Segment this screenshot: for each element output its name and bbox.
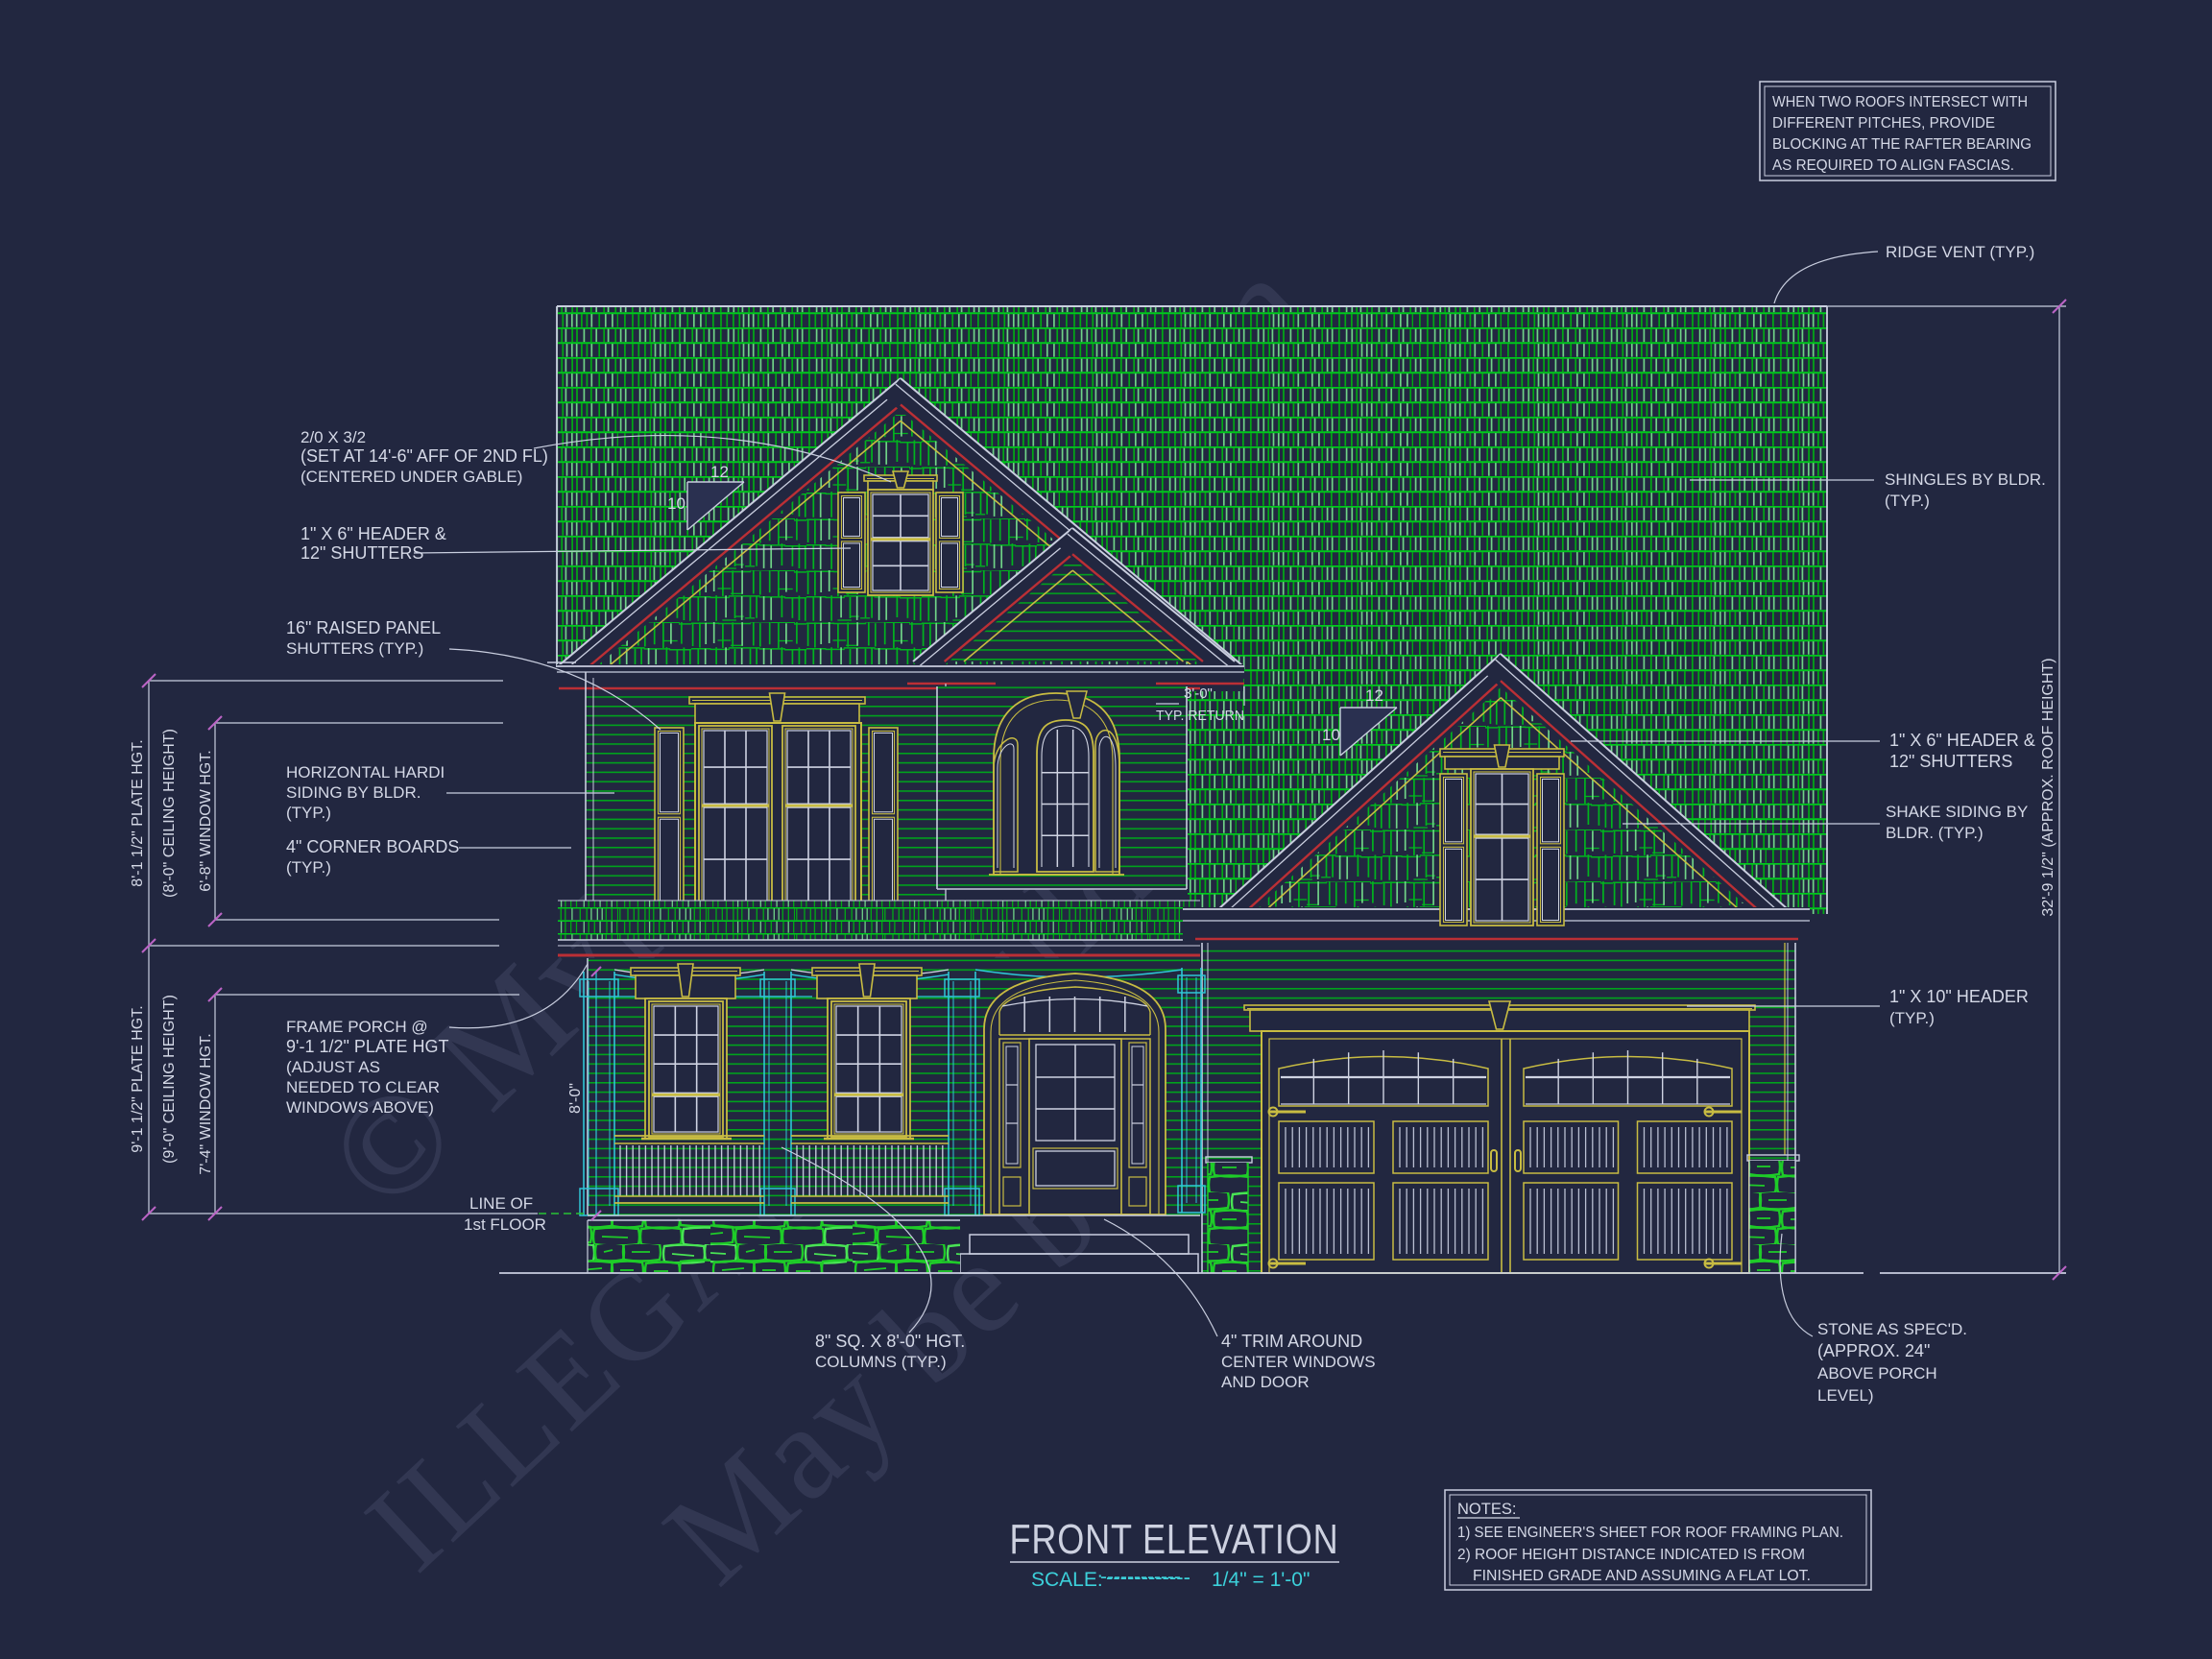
svg-text:(ADJUST AS: (ADJUST AS: [286, 1058, 380, 1076]
svg-text:STONE AS SPEC'D.: STONE AS SPEC'D.: [1817, 1320, 1967, 1338]
svg-text:8" SQ. X 8'-0" HGT.: 8" SQ. X 8'-0" HGT.: [815, 1332, 965, 1351]
svg-text:HORIZONTAL HARDI: HORIZONTAL HARDI: [286, 763, 445, 781]
svg-text:DIFFERENT PITCHES, PROVIDE: DIFFERENT PITCHES, PROVIDE: [1772, 115, 1995, 132]
svg-text:12" SHUTTERS: 12" SHUTTERS: [301, 543, 423, 563]
svg-text:1" X 6" HEADER &: 1" X 6" HEADER &: [1889, 731, 2035, 750]
svg-text:16" RAISED PANEL: 16" RAISED PANEL: [286, 618, 441, 637]
svg-text:(8'-0" CEILING HEIGHT): (8'-0" CEILING HEIGHT): [161, 729, 178, 898]
svg-text:TYP. RETURN: TYP. RETURN: [1156, 708, 1244, 724]
svg-text:------------: ------------: [1106, 1565, 1190, 1589]
svg-text:2) ROOF HEIGHT DISTANCE INDICA: 2) ROOF HEIGHT DISTANCE INDICATED IS FRO…: [1457, 1547, 1805, 1563]
svg-text:BLOCKING AT THE RAFTER BEARING: BLOCKING AT THE RAFTER BEARING: [1772, 136, 2032, 153]
svg-text:SIDING BY BLDR.: SIDING BY BLDR.: [286, 783, 421, 802]
svg-text:(CENTERED UNDER GABLE): (CENTERED UNDER GABLE): [301, 468, 522, 486]
svg-text:SHAKE SIDING BY: SHAKE SIDING BY: [1886, 803, 2028, 821]
svg-text:FRAME PORCH @: FRAME PORCH @: [286, 1018, 428, 1036]
svg-text:12: 12: [1365, 686, 1383, 705]
svg-text:(APPROX. 24": (APPROX. 24": [1817, 1341, 1930, 1360]
svg-text:CENTER WINDOWS: CENTER WINDOWS: [1221, 1353, 1376, 1371]
svg-text:AND DOOR: AND DOOR: [1221, 1373, 1310, 1391]
svg-text:1" X 10" HEADER: 1" X 10" HEADER: [1889, 987, 2029, 1006]
svg-text:SHUTTERS (TYP.): SHUTTERS (TYP.): [286, 639, 423, 658]
svg-text:9'-1 1/2" PLATE HGT.: 9'-1 1/2" PLATE HGT.: [130, 1005, 146, 1152]
svg-text:LEVEL): LEVEL): [1817, 1386, 1874, 1405]
svg-text:FINISHED GRADE AND ASSUMING A: FINISHED GRADE AND ASSUMING A FLAT LOT.: [1473, 1568, 1811, 1584]
svg-text:12" SHUTTERS: 12" SHUTTERS: [1889, 752, 2012, 771]
svg-text:LINE OF: LINE OF: [469, 1194, 533, 1213]
svg-text:1) SEE ENGINEER'S SHEET FOR RO: 1) SEE ENGINEER'S SHEET FOR ROOF FRAMING…: [1457, 1525, 1843, 1541]
svg-text:NOTES:: NOTES:: [1457, 1501, 1516, 1518]
svg-text:4" TRIM AROUND: 4" TRIM AROUND: [1221, 1332, 1362, 1351]
svg-text:SHINGLES BY BLDR.: SHINGLES BY BLDR.: [1885, 470, 2046, 489]
svg-text:8'-0": 8'-0": [567, 1083, 584, 1114]
svg-text:NEEDED TO CLEAR: NEEDED TO CLEAR: [286, 1078, 440, 1096]
svg-text:ABOVE PORCH: ABOVE PORCH: [1817, 1364, 1937, 1382]
svg-text:(9'-0" CEILING HEIGHT): (9'-0" CEILING HEIGHT): [161, 995, 178, 1164]
svg-text:(TYP.): (TYP.): [1889, 1009, 1935, 1027]
svg-text:(TYP.): (TYP.): [286, 858, 331, 877]
svg-text:RIDGE VENT (TYP.): RIDGE VENT (TYP.): [1886, 243, 2034, 261]
svg-text:4" CORNER BOARDS: 4" CORNER BOARDS: [286, 837, 459, 856]
svg-text:WINDOWS ABOVE): WINDOWS ABOVE): [286, 1098, 434, 1117]
svg-text:7'-4" WINDOW HGT.: 7'-4" WINDOW HGT.: [198, 1033, 214, 1174]
svg-text:BLDR. (TYP.): BLDR. (TYP.): [1886, 824, 1984, 842]
svg-text:COLUMNS (TYP.): COLUMNS (TYP.): [815, 1353, 947, 1371]
svg-text:1st FLOOR: 1st FLOOR: [464, 1215, 546, 1234]
svg-text:9'-1 1/2" PLATE HGT: 9'-1 1/2" PLATE HGT: [286, 1037, 449, 1056]
svg-text:3'-0": 3'-0": [1184, 685, 1213, 702]
svg-text:6'-8" WINDOW HGT.: 6'-8" WINDOW HGT.: [198, 750, 214, 891]
svg-text:10: 10: [667, 494, 685, 513]
svg-text:10: 10: [1322, 726, 1340, 744]
svg-text:(TYP.): (TYP.): [286, 804, 331, 822]
svg-text:FRONT ELEVATION: FRONT ELEVATION: [1010, 1516, 1339, 1563]
svg-text:1/4" = 1'-0": 1/4" = 1'-0": [1212, 1569, 1310, 1591]
svg-text:1" X 6" HEADER &: 1" X 6" HEADER &: [301, 524, 446, 543]
svg-text:(TYP.): (TYP.): [1885, 492, 1930, 510]
svg-text:SCALE:: SCALE:: [1031, 1569, 1103, 1591]
svg-text:WHEN TWO ROOFS INTERSECT WITH: WHEN TWO ROOFS INTERSECT WITH: [1772, 94, 2028, 110]
svg-text:(SET AT 14'-6" AFF OF 2ND FL): (SET AT 14'-6" AFF OF 2ND FL): [301, 446, 548, 466]
svg-text:12: 12: [710, 463, 729, 481]
svg-text:32'-9 1/2" (APPROX. ROOF HEIGH: 32'-9 1/2" (APPROX. ROOF HEIGHT): [2040, 658, 2056, 916]
svg-text:2/0 X 3/2: 2/0 X 3/2: [301, 428, 366, 446]
svg-text:AS REQUIRED TO ALIGN FASCIAS.: AS REQUIRED TO ALIGN FASCIAS.: [1772, 157, 2014, 174]
svg-text:8'-1 1/2" PLATE HGT.: 8'-1 1/2" PLATE HGT.: [130, 739, 146, 886]
